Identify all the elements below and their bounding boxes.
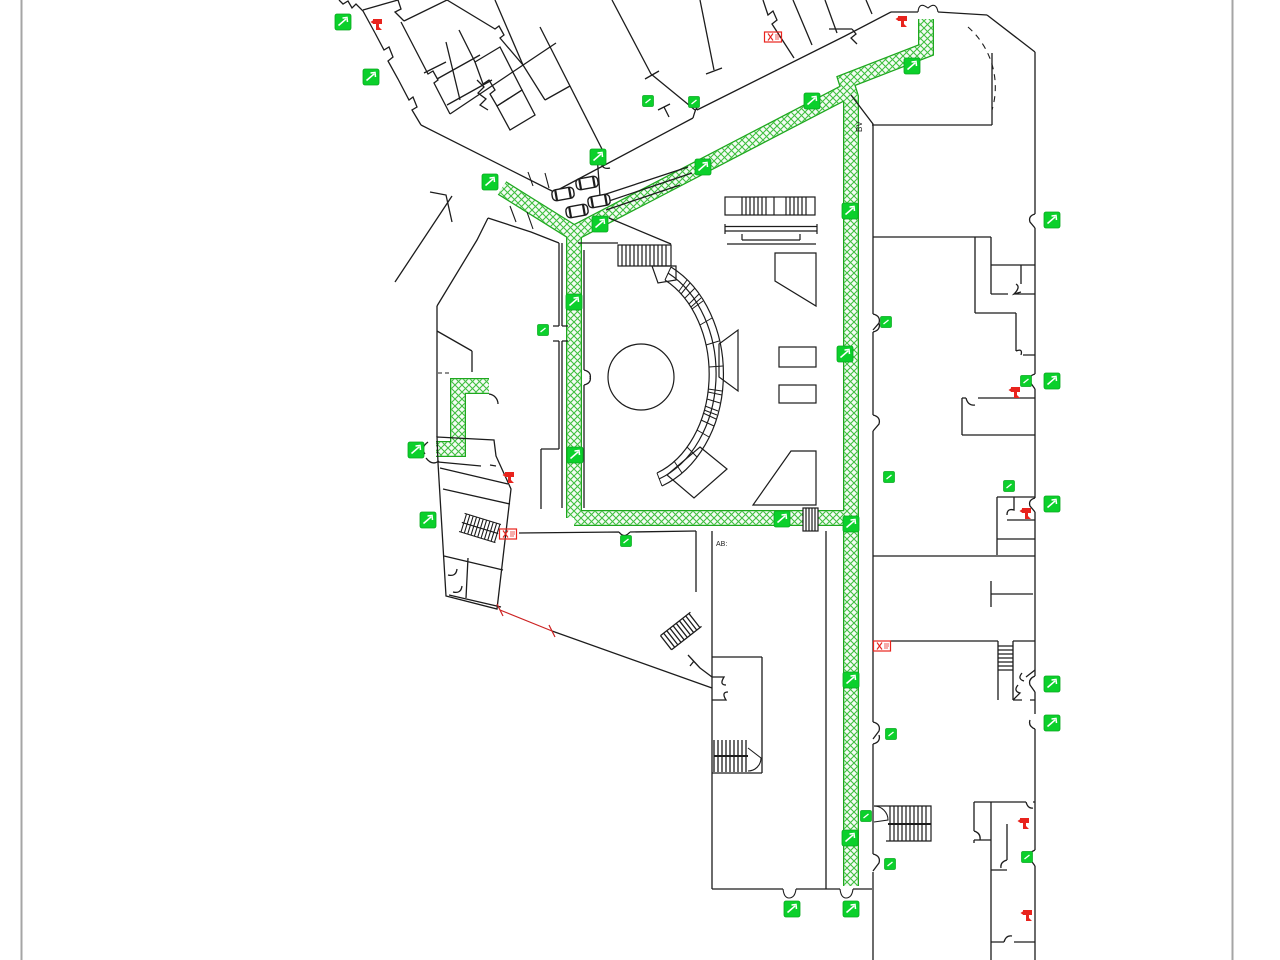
svg-text:BV: BV (855, 121, 864, 132)
svg-text:AB:: AB: (716, 541, 727, 548)
